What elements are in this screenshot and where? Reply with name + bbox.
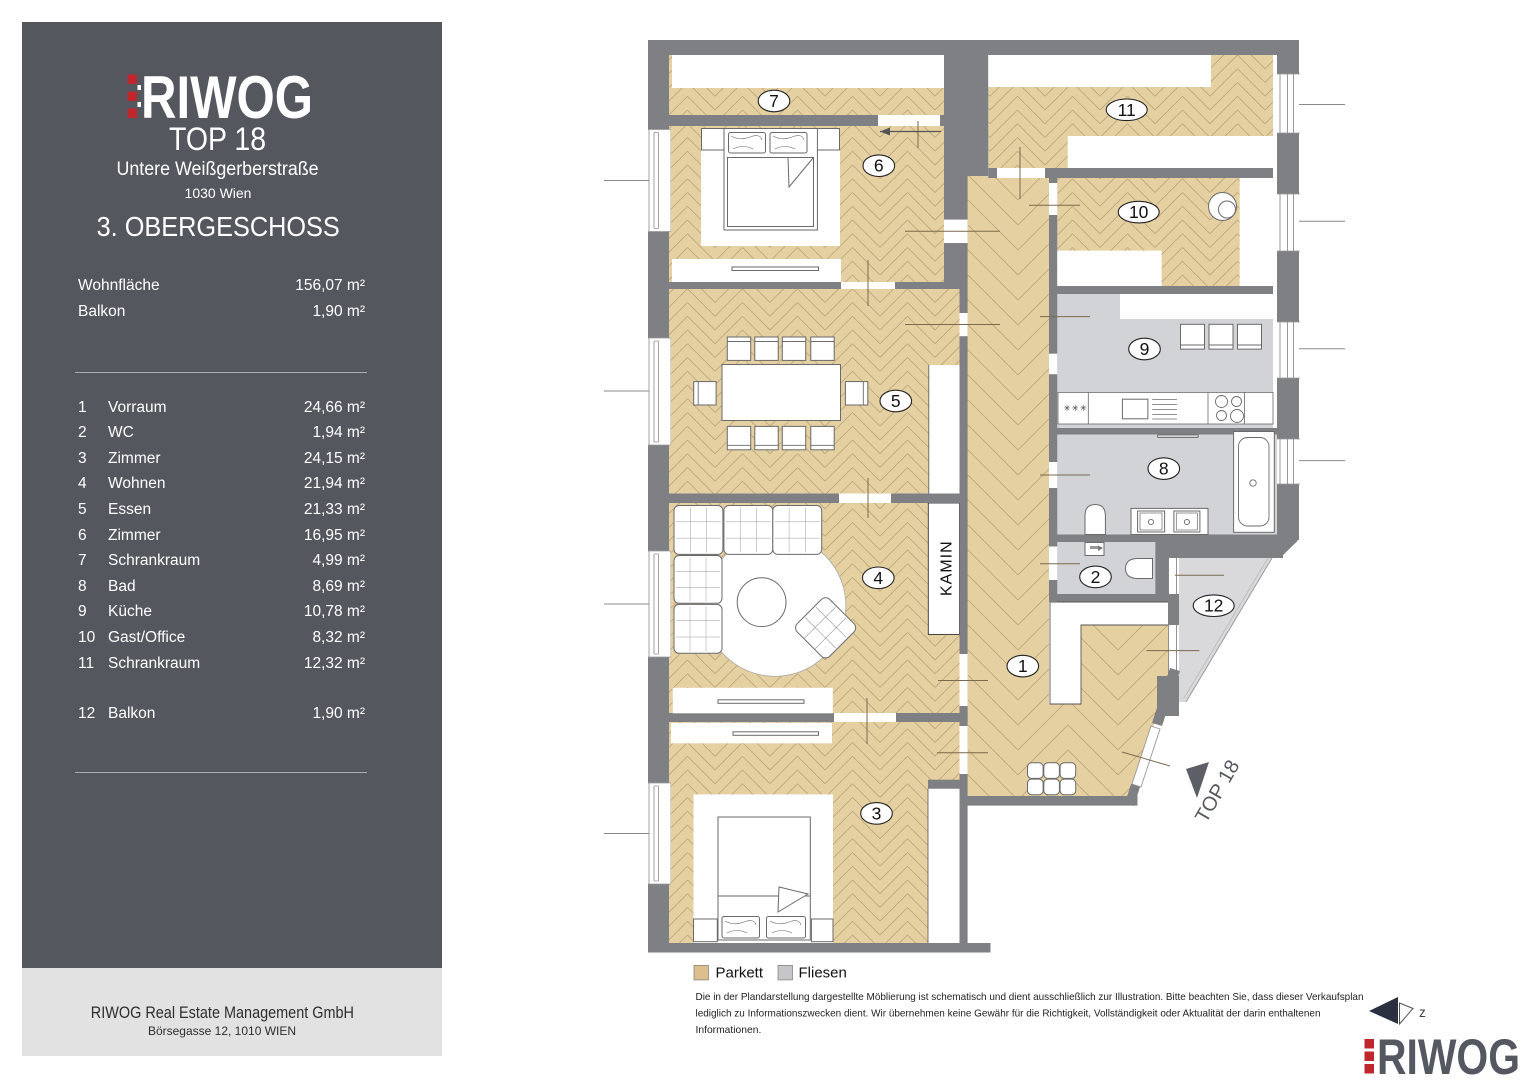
- svg-text:Parkett: Parkett: [716, 965, 764, 982]
- svg-text:1: 1: [1018, 656, 1028, 676]
- svg-text:z: z: [1419, 1005, 1426, 1020]
- svg-text:Informationen.: Informationen.: [696, 1025, 762, 1036]
- svg-text:2: 2: [1091, 567, 1101, 587]
- svg-text:Fliesen: Fliesen: [799, 965, 847, 982]
- svg-text:12: 12: [1204, 596, 1223, 616]
- svg-text:5: 5: [891, 391, 901, 411]
- svg-text:RIWOG: RIWOG: [1377, 1029, 1520, 1080]
- svg-text:Die in der Plandarstellung dar: Die in der Plandarstellung dargestellte …: [696, 992, 1364, 1003]
- svg-text:8: 8: [1159, 459, 1169, 479]
- svg-text:✳✳✳: ✳✳✳: [1064, 403, 1088, 413]
- svg-text:11: 11: [1118, 100, 1136, 120]
- svg-text:7: 7: [769, 91, 779, 111]
- svg-text:6: 6: [874, 156, 884, 176]
- svg-text:9: 9: [1140, 339, 1150, 359]
- svg-text:lediglich zu Informationszweck: lediglich zu Informationszwecken dient. …: [696, 1009, 1321, 1020]
- svg-text:3: 3: [872, 803, 882, 823]
- svg-text:KAMIN: KAMIN: [939, 540, 956, 596]
- svg-text:4: 4: [873, 568, 883, 588]
- svg-text:10: 10: [1129, 202, 1149, 222]
